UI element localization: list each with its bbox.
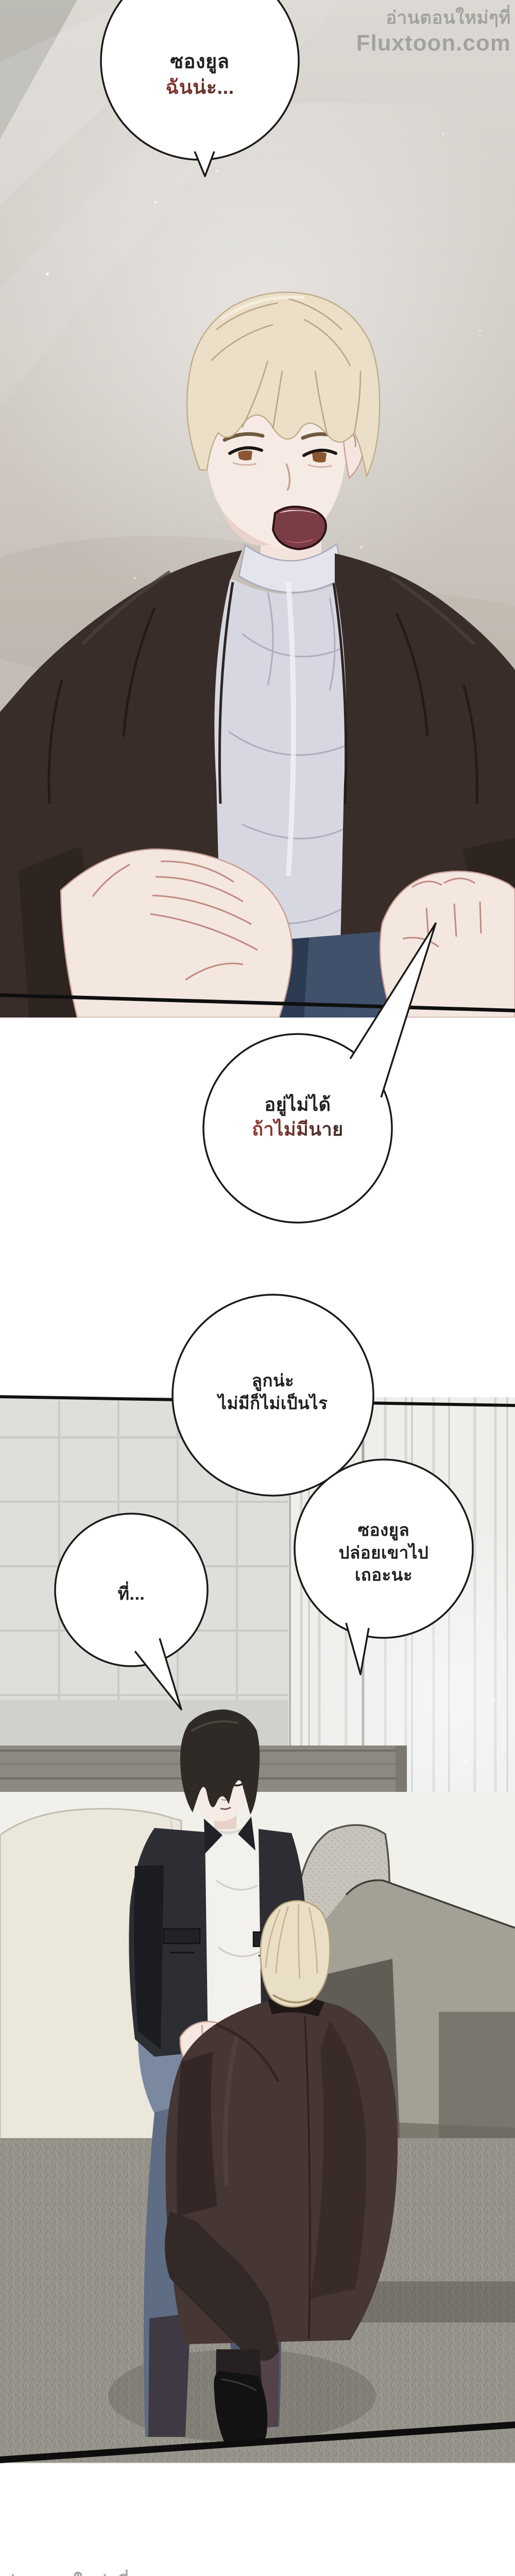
- panel-2-bubbles: [0, 1278, 515, 1731]
- bubble-4-line-1: ซองยูล: [305, 1519, 462, 1541]
- speech-bubble-1: ซองยูล ฉันน่ะ...: [123, 49, 277, 100]
- bubble-3-line-2: ไม่มีก็ไม่เป็นไร: [195, 1392, 351, 1415]
- panel-1-artwork: [0, 0, 515, 1018]
- watermark-top-site: Fluxtoon.com: [356, 29, 511, 57]
- watermark-bottom-text: อ่านตอนใหม่ๆที่: [4, 2572, 168, 2576]
- bubble-5-line-1: ที่...: [53, 1583, 210, 1606]
- speech-bubble-2-shape: [0, 902, 515, 1231]
- bubble-1-line-1: ซองยูล: [123, 49, 277, 75]
- watermark-top: อ่านตอนใหม่ๆที่ Fluxtoon.com: [356, 7, 511, 57]
- bubble-4-line-2: ปล่อยเขาไป: [305, 1541, 462, 1564]
- speech-bubble-2: อยู่ไม่ได้ ถ้าไม่มีนาย: [220, 1092, 375, 1141]
- bubble-2-line-1: อยู่ไม่ได้: [220, 1092, 375, 1117]
- speech-bubble-5: ที่...: [53, 1583, 210, 1606]
- speech-bubble-4: ซองยูล ปล่อยเขาไป เถอะนะ: [305, 1519, 462, 1586]
- watermark-top-text: อ่านตอนใหม่ๆที่: [356, 7, 511, 29]
- bubble-4-line-3: เถอะนะ: [305, 1564, 462, 1586]
- bubble-2-line-2: ถ้าไม่มีนาย: [220, 1117, 375, 1142]
- webtoon-page: ซองยูล ฉันน่ะ... อยู่ไม่ได้ ถ้าไม่มีนาย: [0, 0, 515, 2576]
- watermark-bottom: อ่านตอนใหม่ๆที่ Fluxtoon.com: [4, 2572, 168, 2576]
- speech-bubble-5-shape: [55, 1514, 208, 1709]
- bubble-1-line-2: ฉันน่ะ...: [123, 75, 277, 100]
- speech-bubble-3: ลูกน่ะ ไม่มีก็ไม่เป็นไร: [195, 1369, 351, 1414]
- bubble-3-line-1: ลูกน่ะ: [195, 1369, 351, 1392]
